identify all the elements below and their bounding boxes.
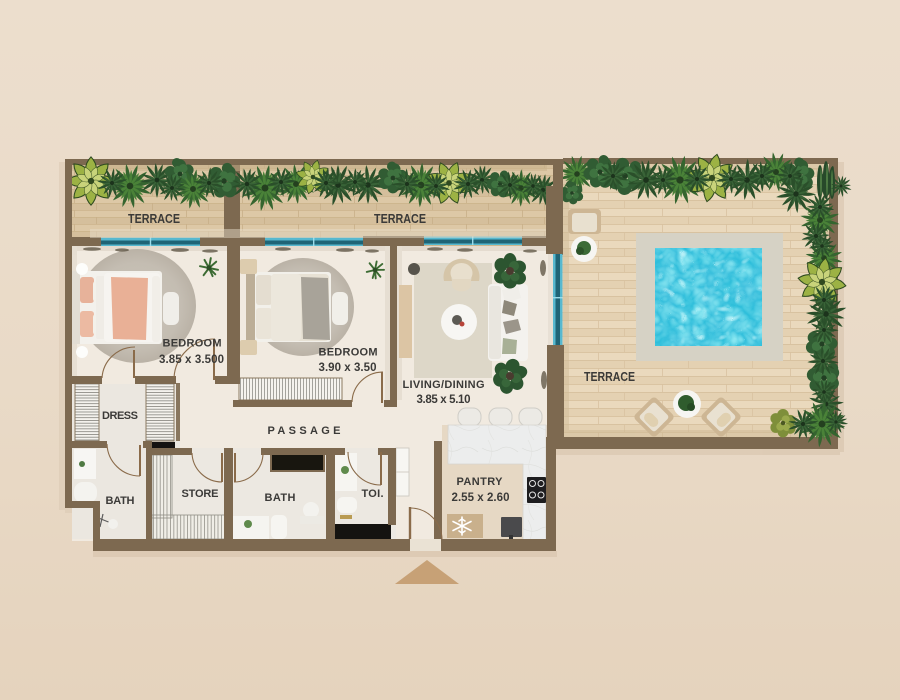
svg-text:BEDROOM: BEDROOM xyxy=(319,347,378,359)
svg-text:PASSAGE: PASSAGE xyxy=(268,425,341,437)
svg-text:3.85 x 5.10: 3.85 x 5.10 xyxy=(417,394,471,406)
svg-text:BATH: BATH xyxy=(106,495,135,507)
svg-text:BATH: BATH xyxy=(265,492,296,504)
svg-text:3.90 x 3.50: 3.90 x 3.50 xyxy=(319,362,377,374)
svg-text:LIVING/DINING: LIVING/DINING xyxy=(403,379,485,391)
svg-text:3.85 x 3.500: 3.85 x 3.500 xyxy=(159,354,224,366)
svg-text:TERRACE: TERRACE xyxy=(584,370,635,384)
svg-text:DRESS: DRESS xyxy=(102,410,138,422)
svg-text:PANTRY: PANTRY xyxy=(457,476,504,488)
svg-text:TERRACE: TERRACE xyxy=(374,212,426,226)
svg-text:2.55 x 2.60: 2.55 x 2.60 xyxy=(452,492,510,504)
svg-text:TOI.: TOI. xyxy=(362,488,384,500)
svg-text:BEDROOM: BEDROOM xyxy=(163,338,222,350)
svg-text:STORE: STORE xyxy=(182,488,219,500)
svg-text:TERRACE: TERRACE xyxy=(128,212,180,226)
